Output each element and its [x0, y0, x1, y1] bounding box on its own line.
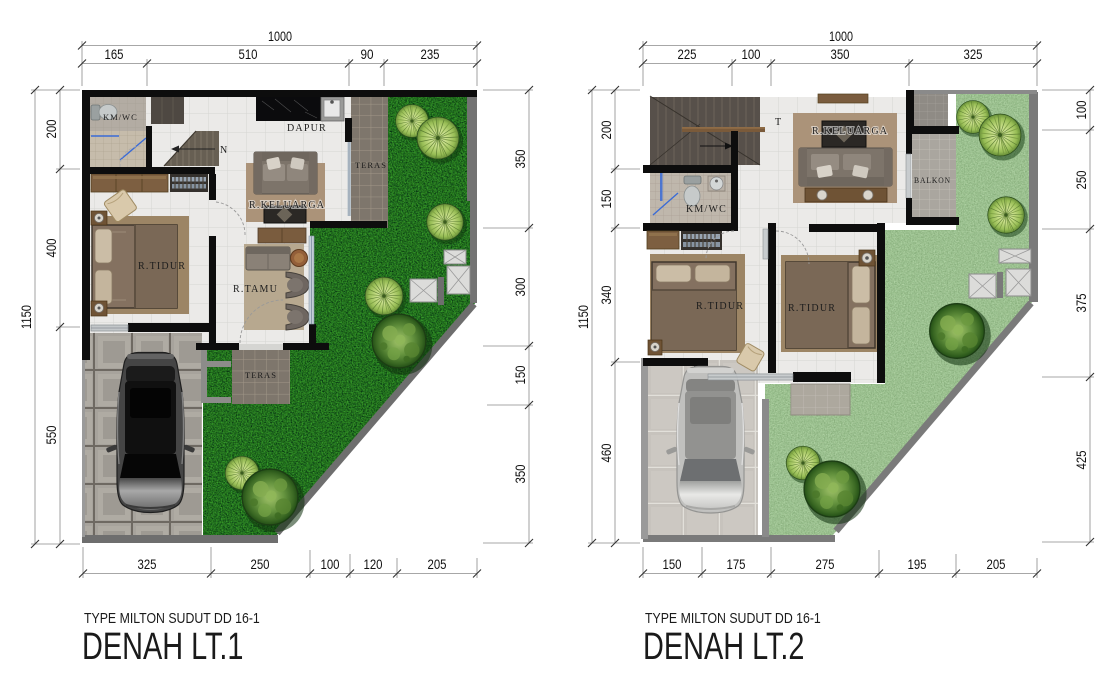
svg-text:510: 510 [239, 46, 258, 62]
svg-text:325: 325 [138, 556, 157, 572]
svg-text:1150: 1150 [575, 305, 591, 329]
svg-text:175: 175 [727, 556, 746, 572]
svg-text:R.KELUARGA: R.KELUARGA [249, 200, 325, 211]
svg-text:KM/WC: KM/WC [686, 204, 727, 215]
svg-text:R.KELUARGA: R.KELUARGA [812, 126, 888, 137]
svg-text:350: 350 [512, 149, 528, 168]
svg-text:460: 460 [598, 443, 614, 462]
svg-text:R.TIDUR: R.TIDUR [696, 301, 744, 312]
svg-text:300: 300 [512, 277, 528, 296]
svg-text:250: 250 [251, 556, 270, 572]
svg-text:550: 550 [43, 425, 59, 444]
svg-text:400: 400 [43, 238, 59, 257]
svg-text:T: T [775, 117, 782, 128]
svg-text:425: 425 [1073, 450, 1089, 469]
svg-text:TYPE MILTON SUDUT DD 16-1: TYPE MILTON SUDUT DD 16-1 [84, 610, 260, 626]
svg-text:TYPE MILTON SUDUT DD 16-1: TYPE MILTON SUDUT DD 16-1 [645, 610, 821, 626]
svg-text:150: 150 [598, 189, 614, 208]
svg-text:BALKON: BALKON [914, 175, 951, 185]
svg-text:100: 100 [321, 556, 340, 572]
svg-text:1150: 1150 [18, 305, 34, 329]
svg-text:225: 225 [678, 46, 697, 62]
svg-text:R.TAMU: R.TAMU [233, 284, 278, 295]
svg-text:1000: 1000 [829, 28, 853, 44]
svg-text:DENAH LT.1: DENAH LT.1 [82, 625, 243, 668]
svg-text:DAPUR: DAPUR [287, 123, 327, 134]
svg-text:R.TIDUR: R.TIDUR [138, 261, 186, 272]
svg-text:195: 195 [908, 556, 927, 572]
svg-text:350: 350 [831, 46, 850, 62]
svg-text:165: 165 [105, 46, 124, 62]
svg-text:TERAS: TERAS [355, 160, 387, 170]
svg-text:235: 235 [421, 46, 440, 62]
svg-text:275: 275 [816, 556, 835, 572]
svg-text:200: 200 [598, 120, 614, 139]
svg-text:R.TIDUR: R.TIDUR [788, 303, 836, 314]
svg-text:200: 200 [43, 119, 59, 138]
svg-text:120: 120 [364, 556, 383, 572]
svg-text:KM/WC: KM/WC [103, 112, 138, 122]
svg-text:150: 150 [663, 556, 682, 572]
svg-text:N: N [220, 145, 228, 156]
svg-text:100: 100 [742, 46, 761, 62]
svg-text:205: 205 [428, 556, 447, 572]
svg-text:90: 90 [361, 46, 374, 62]
svg-text:100: 100 [1073, 100, 1089, 119]
svg-text:325: 325 [964, 46, 983, 62]
svg-text:340: 340 [598, 285, 614, 304]
svg-text:350: 350 [512, 464, 528, 483]
svg-text:205: 205 [987, 556, 1006, 572]
svg-text:150: 150 [512, 365, 528, 384]
svg-text:375: 375 [1073, 293, 1089, 312]
svg-text:250: 250 [1073, 170, 1089, 189]
svg-text:TERAS: TERAS [245, 370, 277, 380]
svg-text:1000: 1000 [268, 28, 292, 44]
svg-text:DENAH LT.2: DENAH LT.2 [643, 625, 804, 668]
